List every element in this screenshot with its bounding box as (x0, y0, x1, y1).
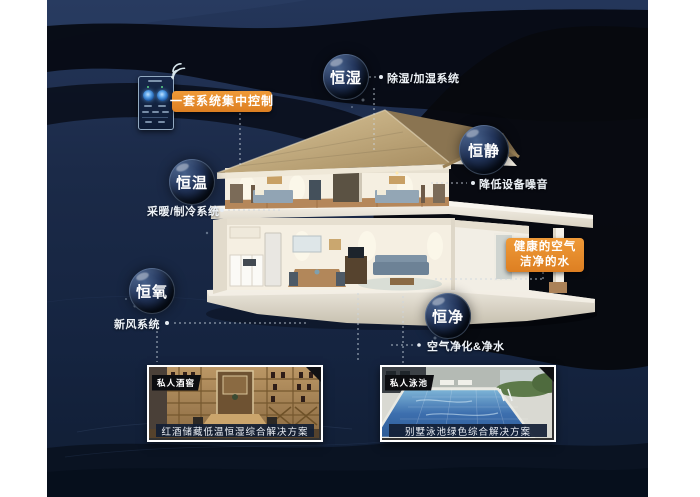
desc-noise-reduction: 降低设备噪音 (479, 176, 548, 192)
wine-cellar-tag: 私人酒窖 (152, 375, 201, 391)
bubble-constant-quiet: 恒静 (459, 125, 509, 175)
status-led (147, 86, 149, 88)
bubble-constant-temperature: 恒温 (169, 159, 215, 205)
corner-ribbon (306, 367, 321, 382)
pool-photo: 私人泳池 别墅泳池绿色综合解决方案 (380, 365, 556, 442)
bubble-label: 恒湿 (330, 67, 362, 88)
pool-tag: 私人泳池 (385, 375, 434, 391)
desc-heating-cooling-system: 采暖/制冷系统 (147, 203, 220, 219)
healthy-air-callout: 健康的空气 洁净的水 (506, 238, 584, 272)
healthy-air-line1: 健康的空气 (514, 240, 577, 255)
infographic-canvas: 一套系统集中控制 健康的空气 洁净的水 恒湿 恒静 恒温 恒氧 恒净 除湿/加湿… (47, 0, 648, 497)
corner-ribbon (539, 367, 554, 382)
wine-cellar-scene: 私人酒窖 红酒储藏低温恒湿综合解决方案 (149, 367, 321, 440)
panel-header (148, 80, 162, 82)
bubble-constant-clean: 恒净 (425, 293, 471, 339)
bubble-label: 恒氧 (136, 281, 168, 302)
desc-dehumidify-system: 除湿/加湿系统 (387, 70, 460, 86)
bubble-label: 恒静 (468, 140, 500, 161)
central-control-callout: 一套系统集中控制 (172, 91, 272, 112)
bubble-constant-oxygen: 恒氧 (129, 268, 175, 314)
wine-cellar-photo: 私人酒窖 红酒储藏低温恒湿综合解决方案 (147, 365, 323, 442)
pool-caption: 别墅泳池绿色综合解决方案 (389, 424, 547, 437)
bubble-constant-humidity: 恒湿 (323, 54, 369, 100)
dial-knob (157, 90, 168, 101)
desc-air-water-purification: 空气净化&净水 (427, 338, 504, 354)
desc-fresh-air-system: 新风系统 (114, 316, 160, 332)
status-led (161, 86, 163, 88)
dial-knob (143, 90, 154, 101)
central-control-label: 一套系统集中控制 (170, 94, 274, 109)
pool-scene: 私人泳池 别墅泳池绿色综合解决方案 (382, 367, 554, 440)
healthy-air-line2: 洁净的水 (520, 255, 570, 270)
wine-cellar-caption: 红酒储藏低温恒湿综合解决方案 (156, 424, 314, 437)
bubble-label: 恒温 (176, 172, 208, 193)
control-panel (138, 76, 174, 130)
bubble-label: 恒净 (432, 306, 464, 327)
infographic-frame: 一套系统集中控制 健康的空气 洁净的水 恒湿 恒静 恒温 恒氧 恒净 除湿/加湿… (0, 0, 700, 497)
wifi-icon (169, 62, 189, 80)
